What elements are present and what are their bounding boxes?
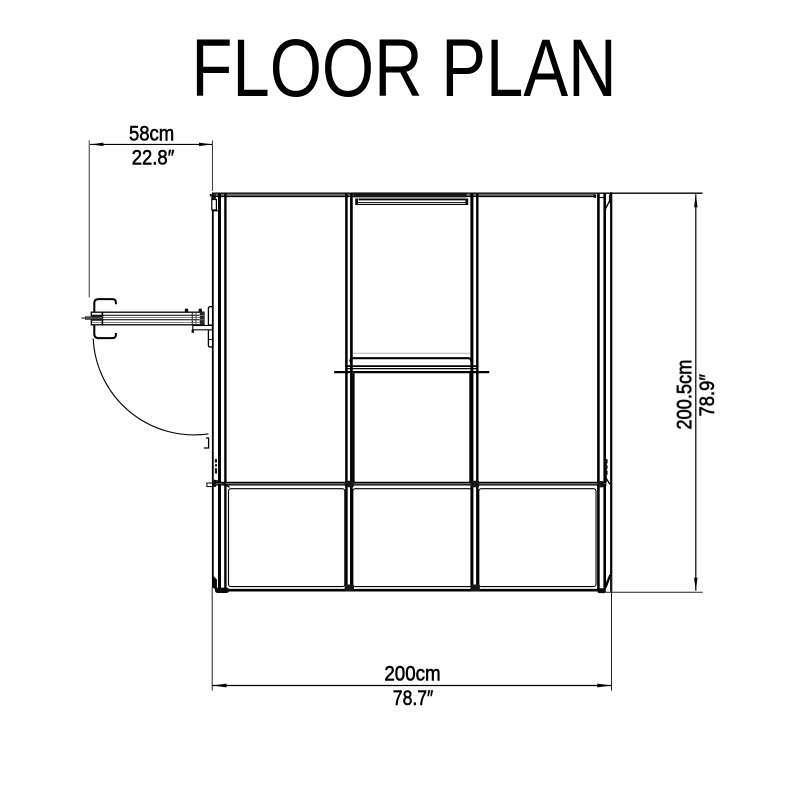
svg-text:78.9″: 78.9″ [695, 374, 719, 417]
svg-text:FLOOR PLAN: FLOOR PLAN [191, 22, 616, 114]
svg-text:200.5cm: 200.5cm [672, 360, 696, 430]
svg-text:200cm: 200cm [384, 662, 440, 686]
svg-text:22.8″: 22.8″ [132, 146, 175, 170]
svg-text:58cm: 58cm [129, 122, 174, 146]
svg-text:78.7″: 78.7″ [393, 686, 434, 710]
